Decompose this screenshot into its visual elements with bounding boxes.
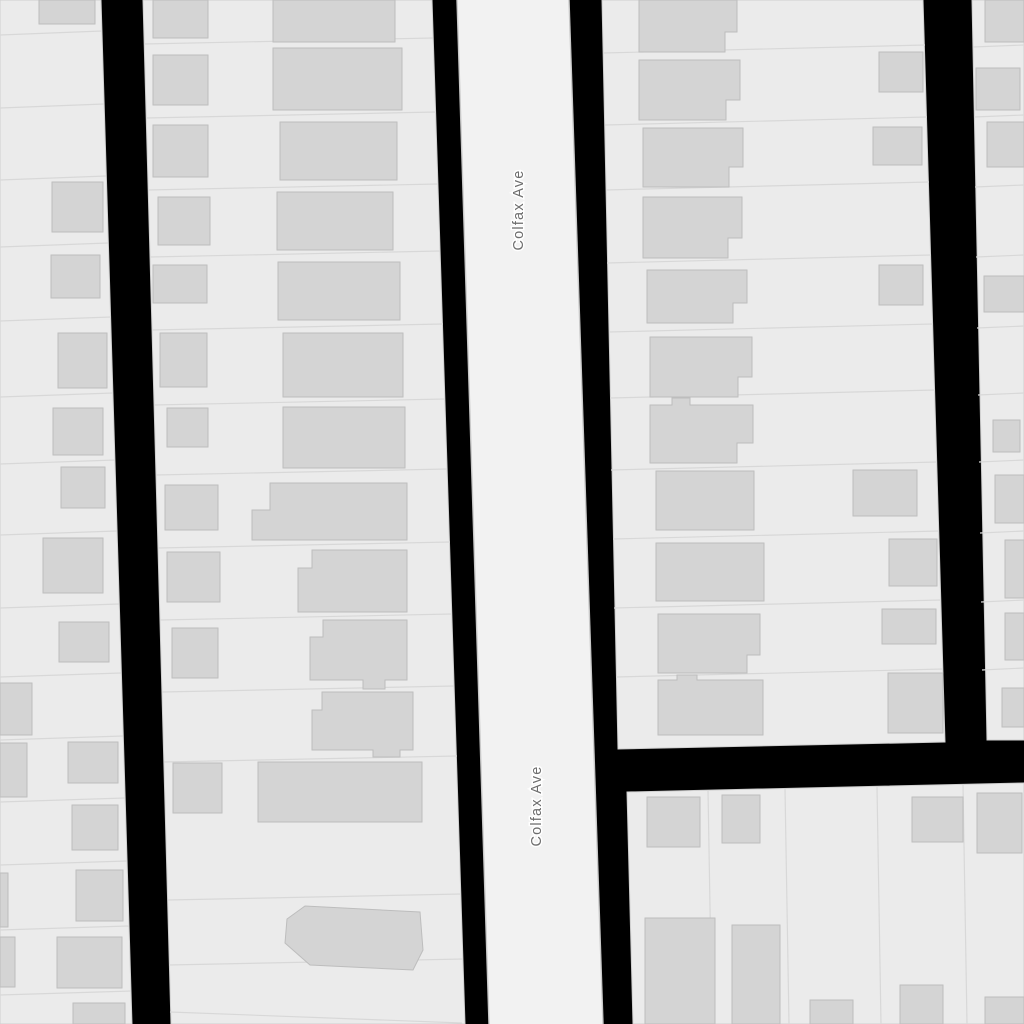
building-footprint <box>153 55 208 105</box>
building-footprint <box>312 692 413 757</box>
building-footprint <box>43 538 103 593</box>
building-footprint <box>252 483 407 540</box>
building-footprint <box>873 127 922 165</box>
building-footprint <box>59 622 109 662</box>
building-footprint <box>53 408 103 455</box>
building-footprint <box>656 471 754 530</box>
building-footprint <box>76 870 123 921</box>
building-footprint <box>58 333 107 388</box>
building-footprint <box>643 197 742 258</box>
building-footprint <box>165 485 218 530</box>
building-footprint <box>277 192 393 250</box>
building-footprint <box>0 743 27 797</box>
building-footprint <box>658 614 760 673</box>
building-footprint <box>51 255 100 298</box>
building-footprint <box>52 182 103 232</box>
building-footprint <box>278 262 400 320</box>
building-footprint <box>912 797 963 842</box>
street-label-colfax-ave: Colfax Ave <box>511 169 527 250</box>
building-footprint <box>889 539 937 586</box>
building-footprint <box>0 873 8 927</box>
building-footprint <box>853 470 917 516</box>
building-footprint <box>285 906 423 970</box>
building-footprint <box>643 128 743 187</box>
building-footprint <box>73 1003 125 1024</box>
building-footprint <box>900 985 943 1024</box>
building-footprint <box>283 333 403 397</box>
building-footprint <box>985 0 1024 42</box>
building-footprint <box>645 918 715 1024</box>
map-canvas[interactable]: Colfax AveColfax Ave <box>0 0 1024 1024</box>
building-footprint <box>167 552 220 602</box>
building-footprint <box>68 742 118 783</box>
building-footprint <box>1005 613 1024 660</box>
building-footprint <box>658 675 763 735</box>
building-footprint <box>72 805 118 850</box>
building-footprint <box>639 0 737 52</box>
map-viewport[interactable]: Colfax AveColfax Ave <box>0 0 1024 1024</box>
building-footprint <box>977 793 1022 853</box>
building-footprint <box>984 276 1024 312</box>
building-footprint <box>810 1000 853 1024</box>
building-footprint <box>153 265 207 303</box>
building-footprint <box>882 609 936 644</box>
building-footprint <box>61 467 105 508</box>
building-footprint <box>283 407 405 468</box>
building-footprint <box>639 60 740 120</box>
building-footprint <box>0 937 15 987</box>
building-footprint <box>888 673 943 733</box>
street-label-colfax-ave: Colfax Ave <box>529 765 545 846</box>
building-footprint <box>879 265 923 305</box>
building-footprint <box>273 48 402 110</box>
building-footprint <box>298 550 407 612</box>
building-footprint <box>985 997 1024 1024</box>
building-footprint <box>647 270 747 323</box>
building-footprint <box>722 795 760 843</box>
building-footprint <box>153 0 208 38</box>
building-footprint <box>1005 540 1024 598</box>
building-footprint <box>310 620 407 689</box>
building-footprint <box>273 0 395 42</box>
building-footprint <box>987 122 1024 167</box>
building-footprint <box>153 125 208 177</box>
building-footprint <box>995 475 1024 523</box>
building-footprint <box>647 797 700 847</box>
building-footprint <box>879 52 923 92</box>
building-footprint <box>993 420 1020 452</box>
building-footprint <box>732 925 780 1024</box>
building-footprint <box>173 763 222 813</box>
building-footprint <box>167 408 208 447</box>
building-footprint <box>1002 688 1024 727</box>
building-footprint <box>172 628 218 678</box>
building-footprint <box>158 197 210 245</box>
building-footprint <box>976 68 1020 110</box>
building-footprint <box>258 762 422 822</box>
building-footprint <box>0 683 32 735</box>
building-footprint <box>650 337 752 397</box>
building-footprint <box>280 122 397 180</box>
building-footprint <box>57 937 122 988</box>
building-footprint <box>160 333 207 387</box>
building-footprint <box>39 0 95 24</box>
building-footprint <box>656 543 764 601</box>
